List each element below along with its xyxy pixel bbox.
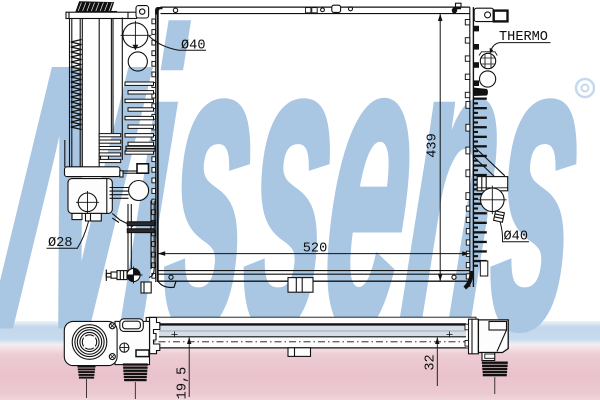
svg-text:19,5: 19,5 <box>175 367 190 400</box>
svg-text:520: 520 <box>303 241 327 256</box>
svg-text:32: 32 <box>424 354 439 370</box>
svg-text:439: 439 <box>426 133 441 157</box>
svg-text:Ø40: Ø40 <box>504 230 528 245</box>
svg-text:Ø40: Ø40 <box>181 38 205 53</box>
svg-text:THERMO: THERMO <box>499 30 548 45</box>
svg-text:Ø28: Ø28 <box>48 236 72 251</box>
